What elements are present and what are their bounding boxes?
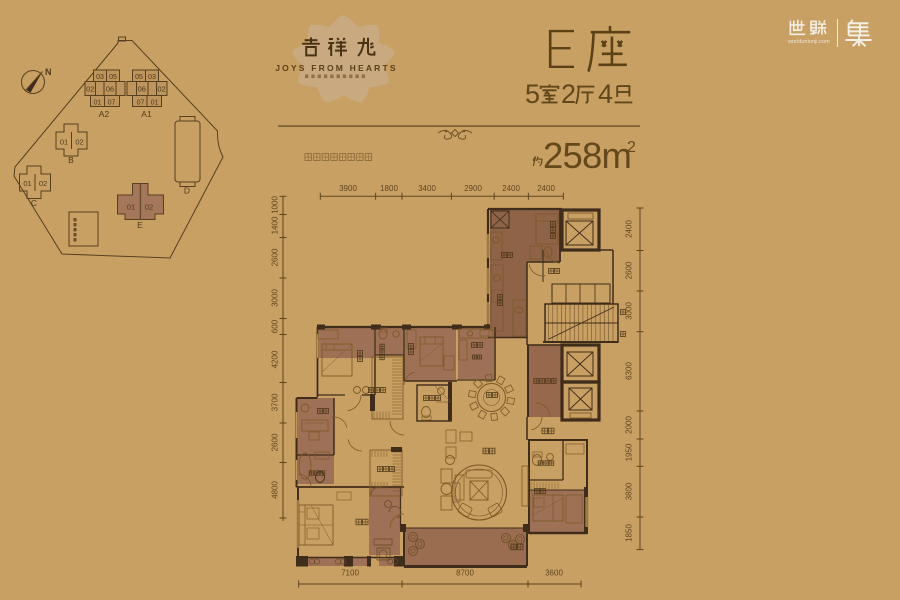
svg-text:02: 02 (39, 179, 47, 188)
svg-text:C: C (31, 198, 37, 208)
svg-text:02: 02 (75, 138, 83, 147)
svg-text:02: 02 (86, 85, 94, 94)
svg-text:07: 07 (137, 100, 145, 107)
svg-text:03: 03 (96, 74, 104, 81)
svg-text:2400: 2400 (502, 184, 520, 193)
svg-text:2600: 2600 (271, 248, 280, 266)
svg-text:1950: 1950 (625, 443, 634, 461)
svg-text:05: 05 (109, 74, 117, 81)
svg-text:JOYS FROM HEARTS: JOYS FROM HEARTS (275, 63, 398, 73)
svg-text:5: 5 (525, 79, 540, 109)
svg-text:02: 02 (145, 203, 153, 212)
svg-text:07: 07 (108, 100, 116, 107)
svg-text:06: 06 (138, 85, 146, 94)
svg-text:A2: A2 (99, 109, 110, 119)
svg-text:06: 06 (106, 85, 114, 94)
svg-text:E: E (137, 220, 143, 230)
svg-text:1800: 1800 (380, 184, 398, 193)
svg-text:05: 05 (135, 74, 143, 81)
svg-text:2: 2 (627, 139, 636, 156)
svg-text:N: N (45, 67, 52, 77)
svg-text:D: D (184, 186, 190, 196)
svg-text:1850: 1850 (625, 524, 634, 542)
svg-text:03: 03 (148, 74, 156, 81)
svg-text:B: B (68, 155, 74, 165)
svg-text:2: 2 (561, 79, 576, 109)
svg-text:8700: 8700 (456, 569, 474, 578)
svg-text:258m: 258m (543, 135, 631, 176)
svg-text:2900: 2900 (464, 184, 482, 193)
svg-text:3600: 3600 (545, 569, 563, 578)
svg-text:4: 4 (598, 79, 613, 109)
svg-text:3000: 3000 (271, 289, 280, 307)
svg-text:01: 01 (60, 138, 68, 147)
svg-text:01: 01 (127, 203, 135, 212)
svg-text:2400: 2400 (625, 220, 634, 238)
svg-text:3700: 3700 (271, 393, 280, 411)
svg-text:4200: 4200 (271, 350, 280, 368)
svg-text:4800: 4800 (271, 481, 280, 499)
svg-text:2600: 2600 (271, 433, 280, 451)
svg-text:1400: 1400 (271, 216, 280, 234)
svg-text:7100: 7100 (341, 569, 359, 578)
svg-text:worldunionji.com: worldunionji.com (787, 39, 830, 45)
svg-text:2400: 2400 (537, 184, 555, 193)
svg-text:01: 01 (151, 100, 159, 107)
svg-text:1000: 1000 (271, 196, 280, 214)
svg-text:3400: 3400 (418, 184, 436, 193)
svg-text:02: 02 (157, 85, 165, 94)
svg-text:2000: 2000 (625, 416, 634, 434)
svg-text:3800: 3800 (625, 482, 634, 500)
svg-text:A1: A1 (141, 109, 152, 119)
svg-text:01: 01 (23, 179, 31, 188)
svg-text:600: 600 (271, 319, 280, 333)
svg-text:3900: 3900 (339, 184, 357, 193)
svg-text:01: 01 (94, 100, 102, 107)
svg-text:2600: 2600 (625, 261, 634, 279)
svg-text:6300: 6300 (625, 362, 634, 380)
